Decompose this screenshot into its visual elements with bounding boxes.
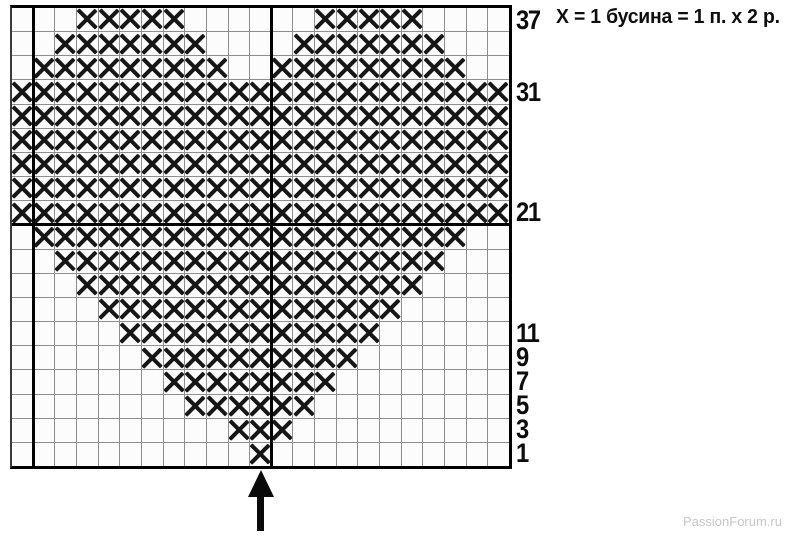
grid-cell <box>34 395 55 418</box>
bead-x-mark <box>229 105 250 128</box>
grid-cell <box>99 419 120 442</box>
bead-x-mark <box>337 250 358 273</box>
bead-x-mark <box>380 201 401 224</box>
grid-cell <box>488 225 509 248</box>
bead-x-mark <box>272 395 293 418</box>
bead-x-mark <box>142 177 163 200</box>
bead-x-mark <box>164 56 185 79</box>
grid-cell <box>12 274 33 297</box>
bead-x-mark <box>77 250 98 273</box>
bead-x-mark <box>142 298 163 321</box>
bead-x-mark <box>272 201 293 224</box>
bead-x-mark <box>337 346 358 369</box>
bead-x-mark <box>467 153 488 176</box>
bead-x-mark <box>77 105 98 128</box>
bead-x-mark <box>207 105 228 128</box>
bead-x-mark <box>293 32 314 55</box>
bead-x-mark <box>185 80 206 103</box>
bead-x-mark <box>423 32 444 55</box>
bead-x-mark <box>164 225 185 248</box>
bead-x-mark <box>423 129 444 152</box>
bead-x-mark <box>77 56 98 79</box>
bead-x-mark <box>402 56 423 79</box>
bead-x-mark <box>12 129 33 152</box>
bead-x-mark <box>34 153 55 176</box>
bead-x-mark <box>142 250 163 273</box>
bead-x-mark <box>120 225 141 248</box>
grid-cell <box>380 346 401 369</box>
bead-x-mark <box>250 129 271 152</box>
grid-cell <box>229 56 250 79</box>
grid-cell <box>488 346 509 369</box>
bead-x-mark <box>315 56 336 79</box>
bead-x-mark <box>488 177 509 200</box>
bead-x-mark <box>380 153 401 176</box>
bead-x-mark <box>229 395 250 418</box>
grid-cell <box>423 443 444 466</box>
bead-x-mark <box>207 370 228 393</box>
bead-x-mark <box>55 105 76 128</box>
bead-x-mark <box>293 250 314 273</box>
watermark: PassionForum.ru <box>683 514 782 529</box>
grid-cell <box>12 56 33 79</box>
grid-cell <box>12 250 33 273</box>
bead-x-mark <box>445 56 466 79</box>
bead-x-mark <box>207 56 228 79</box>
grid-cell <box>34 419 55 442</box>
bead-x-mark <box>315 105 336 128</box>
bead-x-mark <box>120 32 141 55</box>
grid-cell <box>445 274 466 297</box>
grid-cell <box>488 274 509 297</box>
bead-x-mark <box>142 8 163 31</box>
grid-cell <box>185 8 206 31</box>
grid-cell <box>445 346 466 369</box>
bead-x-mark <box>250 225 271 248</box>
bead-x-mark <box>272 298 293 321</box>
bead-x-mark <box>207 250 228 273</box>
grid-cell <box>402 322 423 345</box>
bead-x-mark <box>423 225 444 248</box>
bead-x-mark <box>467 80 488 103</box>
bead-x-mark <box>55 153 76 176</box>
grid-cell <box>34 443 55 466</box>
bead-x-mark <box>55 250 76 273</box>
grid-cell <box>402 370 423 393</box>
grid-cell <box>55 274 76 297</box>
bead-x-mark <box>77 201 98 224</box>
grid-cell <box>315 419 336 442</box>
grid-cell <box>488 419 509 442</box>
bead-x-mark <box>467 201 488 224</box>
bead-x-mark <box>185 225 206 248</box>
bead-x-mark <box>272 419 293 442</box>
grid-cell <box>229 32 250 55</box>
bead-x-mark <box>358 225 379 248</box>
bead-x-mark <box>185 32 206 55</box>
grid-cell <box>272 8 293 31</box>
bead-x-mark <box>120 250 141 273</box>
repeat-boundary-vertical-line <box>270 8 273 466</box>
bead-x-mark <box>488 153 509 176</box>
bead-x-mark <box>358 8 379 31</box>
bead-x-mark <box>380 177 401 200</box>
grid-cell <box>99 346 120 369</box>
bead-x-mark <box>272 250 293 273</box>
bead-x-mark <box>293 395 314 418</box>
bead-x-mark <box>402 105 423 128</box>
bead-x-mark <box>380 298 401 321</box>
bead-x-mark <box>120 153 141 176</box>
bead-x-mark <box>402 80 423 103</box>
grid-cell <box>488 298 509 321</box>
grid-cell <box>34 322 55 345</box>
grid-cell <box>467 419 488 442</box>
bead-x-mark <box>402 274 423 297</box>
bead-x-mark <box>185 298 206 321</box>
bead-x-mark <box>185 274 206 297</box>
grid-cell <box>12 395 33 418</box>
bead-x-mark <box>185 250 206 273</box>
grid-cell <box>445 322 466 345</box>
bead-x-mark <box>337 80 358 103</box>
bead-x-mark <box>380 32 401 55</box>
bead-x-mark <box>315 346 336 369</box>
bead-x-mark <box>402 177 423 200</box>
bead-x-mark <box>229 298 250 321</box>
grid-cell <box>380 322 401 345</box>
bead-x-mark <box>467 129 488 152</box>
bead-x-mark <box>55 129 76 152</box>
grid-cell <box>77 370 98 393</box>
bead-x-mark <box>99 8 120 31</box>
bead-x-mark <box>445 153 466 176</box>
bead-knitting-chart-page: 3731211197531 Х = 1 бусина = 1 п. х 2 р.… <box>0 0 800 539</box>
bead-x-mark <box>380 250 401 273</box>
grid-cell <box>55 370 76 393</box>
grid-cell <box>467 443 488 466</box>
bead-x-mark <box>185 201 206 224</box>
bead-x-mark <box>315 177 336 200</box>
bead-x-mark <box>358 201 379 224</box>
bead-x-mark <box>402 129 423 152</box>
bead-x-mark <box>380 8 401 31</box>
bead-x-mark <box>423 153 444 176</box>
bead-x-mark <box>142 129 163 152</box>
grid-cell <box>337 370 358 393</box>
bead-x-mark <box>402 250 423 273</box>
bead-x-mark <box>34 80 55 103</box>
bead-x-mark <box>164 153 185 176</box>
grid-cell <box>423 274 444 297</box>
bead-x-mark <box>315 153 336 176</box>
grid-cell <box>120 395 141 418</box>
bead-x-mark <box>229 250 250 273</box>
grid-cell <box>467 225 488 248</box>
grid-cell <box>358 419 379 442</box>
grid-cell <box>488 370 509 393</box>
grid-cell <box>423 370 444 393</box>
bead-x-mark <box>250 153 271 176</box>
bead-x-mark <box>315 225 336 248</box>
pattern-grid <box>10 5 512 469</box>
bead-x-mark <box>250 346 271 369</box>
grid-cell <box>445 32 466 55</box>
grid-cell <box>358 370 379 393</box>
grid-cell <box>358 395 379 418</box>
bead-x-mark <box>99 80 120 103</box>
grid-cell <box>358 443 379 466</box>
grid-cell <box>250 32 271 55</box>
grid-cell <box>488 443 509 466</box>
bead-x-mark <box>55 177 76 200</box>
bead-x-mark <box>293 80 314 103</box>
bead-x-mark <box>120 177 141 200</box>
grid-cell <box>34 298 55 321</box>
bead-x-mark <box>293 153 314 176</box>
bead-x-mark <box>207 80 228 103</box>
bead-x-mark <box>207 274 228 297</box>
bead-x-mark <box>142 346 163 369</box>
bead-x-mark <box>358 177 379 200</box>
bead-x-mark <box>423 105 444 128</box>
bead-x-mark <box>207 346 228 369</box>
grid-cell <box>77 346 98 369</box>
grid-cell <box>337 443 358 466</box>
bead-x-mark <box>293 298 314 321</box>
bead-x-mark <box>164 322 185 345</box>
grid-cell <box>488 56 509 79</box>
bead-x-mark <box>272 370 293 393</box>
bead-x-mark <box>337 201 358 224</box>
bead-x-mark <box>315 8 336 31</box>
bead-x-mark <box>488 80 509 103</box>
grid-cell <box>488 322 509 345</box>
bead-x-mark <box>185 56 206 79</box>
grid-cell <box>488 32 509 55</box>
bead-x-mark <box>164 298 185 321</box>
bead-x-mark <box>12 105 33 128</box>
grid-cell <box>164 443 185 466</box>
bead-x-mark <box>99 201 120 224</box>
grid-cell <box>12 322 33 345</box>
bead-x-mark <box>142 80 163 103</box>
grid-cell <box>12 298 33 321</box>
bead-x-mark <box>467 177 488 200</box>
bead-x-mark <box>142 201 163 224</box>
bead-x-mark <box>229 80 250 103</box>
grid-cell <box>77 298 98 321</box>
bead-x-mark <box>315 32 336 55</box>
grid-cell <box>55 322 76 345</box>
grid-cell <box>467 250 488 273</box>
bead-x-mark <box>120 56 141 79</box>
bead-x-mark <box>337 56 358 79</box>
bead-x-mark <box>55 56 76 79</box>
bead-x-mark <box>272 153 293 176</box>
bead-x-mark <box>293 322 314 345</box>
bead-x-mark <box>55 32 76 55</box>
bead-x-mark <box>164 129 185 152</box>
grid-cell <box>12 32 33 55</box>
bead-x-mark <box>55 201 76 224</box>
bead-x-mark <box>229 177 250 200</box>
bead-x-mark <box>77 177 98 200</box>
grid-cell <box>207 443 228 466</box>
bead-x-mark <box>34 105 55 128</box>
grid-cell <box>467 56 488 79</box>
bead-x-mark <box>229 322 250 345</box>
bead-x-mark <box>185 346 206 369</box>
bead-x-mark <box>337 32 358 55</box>
bead-x-mark <box>250 370 271 393</box>
grid-cell <box>423 419 444 442</box>
bead-x-mark <box>293 370 314 393</box>
row-number-labels: 3731211197531 <box>516 8 560 466</box>
bead-x-mark <box>402 153 423 176</box>
grid-cell <box>207 8 228 31</box>
grid-cell <box>467 8 488 31</box>
bead-x-mark <box>358 298 379 321</box>
grid-cell <box>467 274 488 297</box>
bead-x-mark <box>77 225 98 248</box>
bead-x-mark <box>250 177 271 200</box>
bead-x-mark <box>423 177 444 200</box>
bead-x-mark <box>380 274 401 297</box>
grid-cell <box>12 419 33 442</box>
bead-x-mark <box>293 225 314 248</box>
grid-cell <box>380 395 401 418</box>
bead-x-mark <box>77 153 98 176</box>
bead-x-mark <box>293 56 314 79</box>
bead-x-mark <box>380 56 401 79</box>
bead-x-mark <box>229 370 250 393</box>
bead-x-mark <box>358 250 379 273</box>
bead-x-mark <box>250 419 271 442</box>
bead-x-mark <box>250 274 271 297</box>
bead-x-mark <box>12 153 33 176</box>
bead-x-mark <box>164 80 185 103</box>
grid-cell <box>77 419 98 442</box>
bead-x-mark <box>315 201 336 224</box>
grid-cell <box>445 250 466 273</box>
bead-x-mark <box>337 8 358 31</box>
bead-x-mark <box>99 225 120 248</box>
arrow-head <box>248 470 274 497</box>
row-number-label: 31 <box>516 80 540 104</box>
bead-x-mark <box>12 201 33 224</box>
bead-x-mark <box>120 8 141 31</box>
grid-cell <box>380 370 401 393</box>
grid-cell <box>423 298 444 321</box>
bead-x-mark <box>380 80 401 103</box>
bead-x-mark <box>99 250 120 273</box>
grid-cell <box>55 395 76 418</box>
grid-cell <box>12 443 33 466</box>
bead-x-mark <box>445 201 466 224</box>
bead-x-mark <box>207 201 228 224</box>
bead-x-mark <box>488 129 509 152</box>
bead-x-mark <box>337 129 358 152</box>
grid-cell <box>185 419 206 442</box>
center-stitch-arrow-icon <box>247 470 274 533</box>
bead-x-mark <box>315 129 336 152</box>
pattern-grid-cells <box>12 8 509 466</box>
bead-x-mark <box>272 129 293 152</box>
grid-cell <box>445 443 466 466</box>
bead-x-mark <box>380 105 401 128</box>
bead-x-mark <box>34 225 55 248</box>
bead-x-mark <box>250 250 271 273</box>
grid-cell <box>99 322 120 345</box>
bead-x-mark <box>293 105 314 128</box>
grid-cell <box>99 370 120 393</box>
repeat-boundary-vertical-line <box>32 8 35 466</box>
bead-x-mark <box>445 225 466 248</box>
bead-x-mark <box>142 225 163 248</box>
bead-x-mark <box>55 80 76 103</box>
bead-x-mark <box>55 225 76 248</box>
bead-x-mark <box>207 298 228 321</box>
bead-x-mark <box>358 32 379 55</box>
bead-x-mark <box>185 322 206 345</box>
grid-cell <box>99 443 120 466</box>
bead-x-mark <box>293 201 314 224</box>
grid-cell <box>55 346 76 369</box>
grid-cell <box>315 395 336 418</box>
bead-x-mark <box>358 80 379 103</box>
grid-cell <box>467 32 488 55</box>
grid-cell <box>445 419 466 442</box>
grid-cell <box>250 56 271 79</box>
bead-x-mark <box>229 225 250 248</box>
grid-cell <box>120 370 141 393</box>
grid-cell <box>77 322 98 345</box>
section-boundary-horizontal-line <box>12 223 509 226</box>
bead-x-mark <box>423 250 444 273</box>
grid-cell <box>142 370 163 393</box>
grid-cell <box>12 370 33 393</box>
bead-x-mark <box>207 395 228 418</box>
grid-cell <box>99 395 120 418</box>
grid-cell <box>207 419 228 442</box>
bead-x-mark <box>99 32 120 55</box>
bead-x-mark <box>272 274 293 297</box>
bead-x-mark <box>207 322 228 345</box>
bead-x-mark <box>120 105 141 128</box>
bead-x-mark <box>77 32 98 55</box>
bead-x-mark <box>34 201 55 224</box>
grid-cell <box>12 346 33 369</box>
bead-x-mark <box>229 129 250 152</box>
bead-x-mark <box>402 201 423 224</box>
bead-x-mark <box>12 80 33 103</box>
bead-x-mark <box>337 225 358 248</box>
grid-cell <box>34 32 55 55</box>
bead-x-mark <box>99 56 120 79</box>
grid-cell <box>423 395 444 418</box>
bead-x-mark <box>293 129 314 152</box>
grid-cell <box>402 395 423 418</box>
bead-x-mark <box>185 105 206 128</box>
bead-x-mark <box>142 32 163 55</box>
bead-x-mark <box>358 105 379 128</box>
grid-cell <box>77 395 98 418</box>
bead-x-mark <box>272 225 293 248</box>
bead-x-mark <box>402 8 423 31</box>
bead-x-mark <box>315 322 336 345</box>
grid-cell <box>55 443 76 466</box>
